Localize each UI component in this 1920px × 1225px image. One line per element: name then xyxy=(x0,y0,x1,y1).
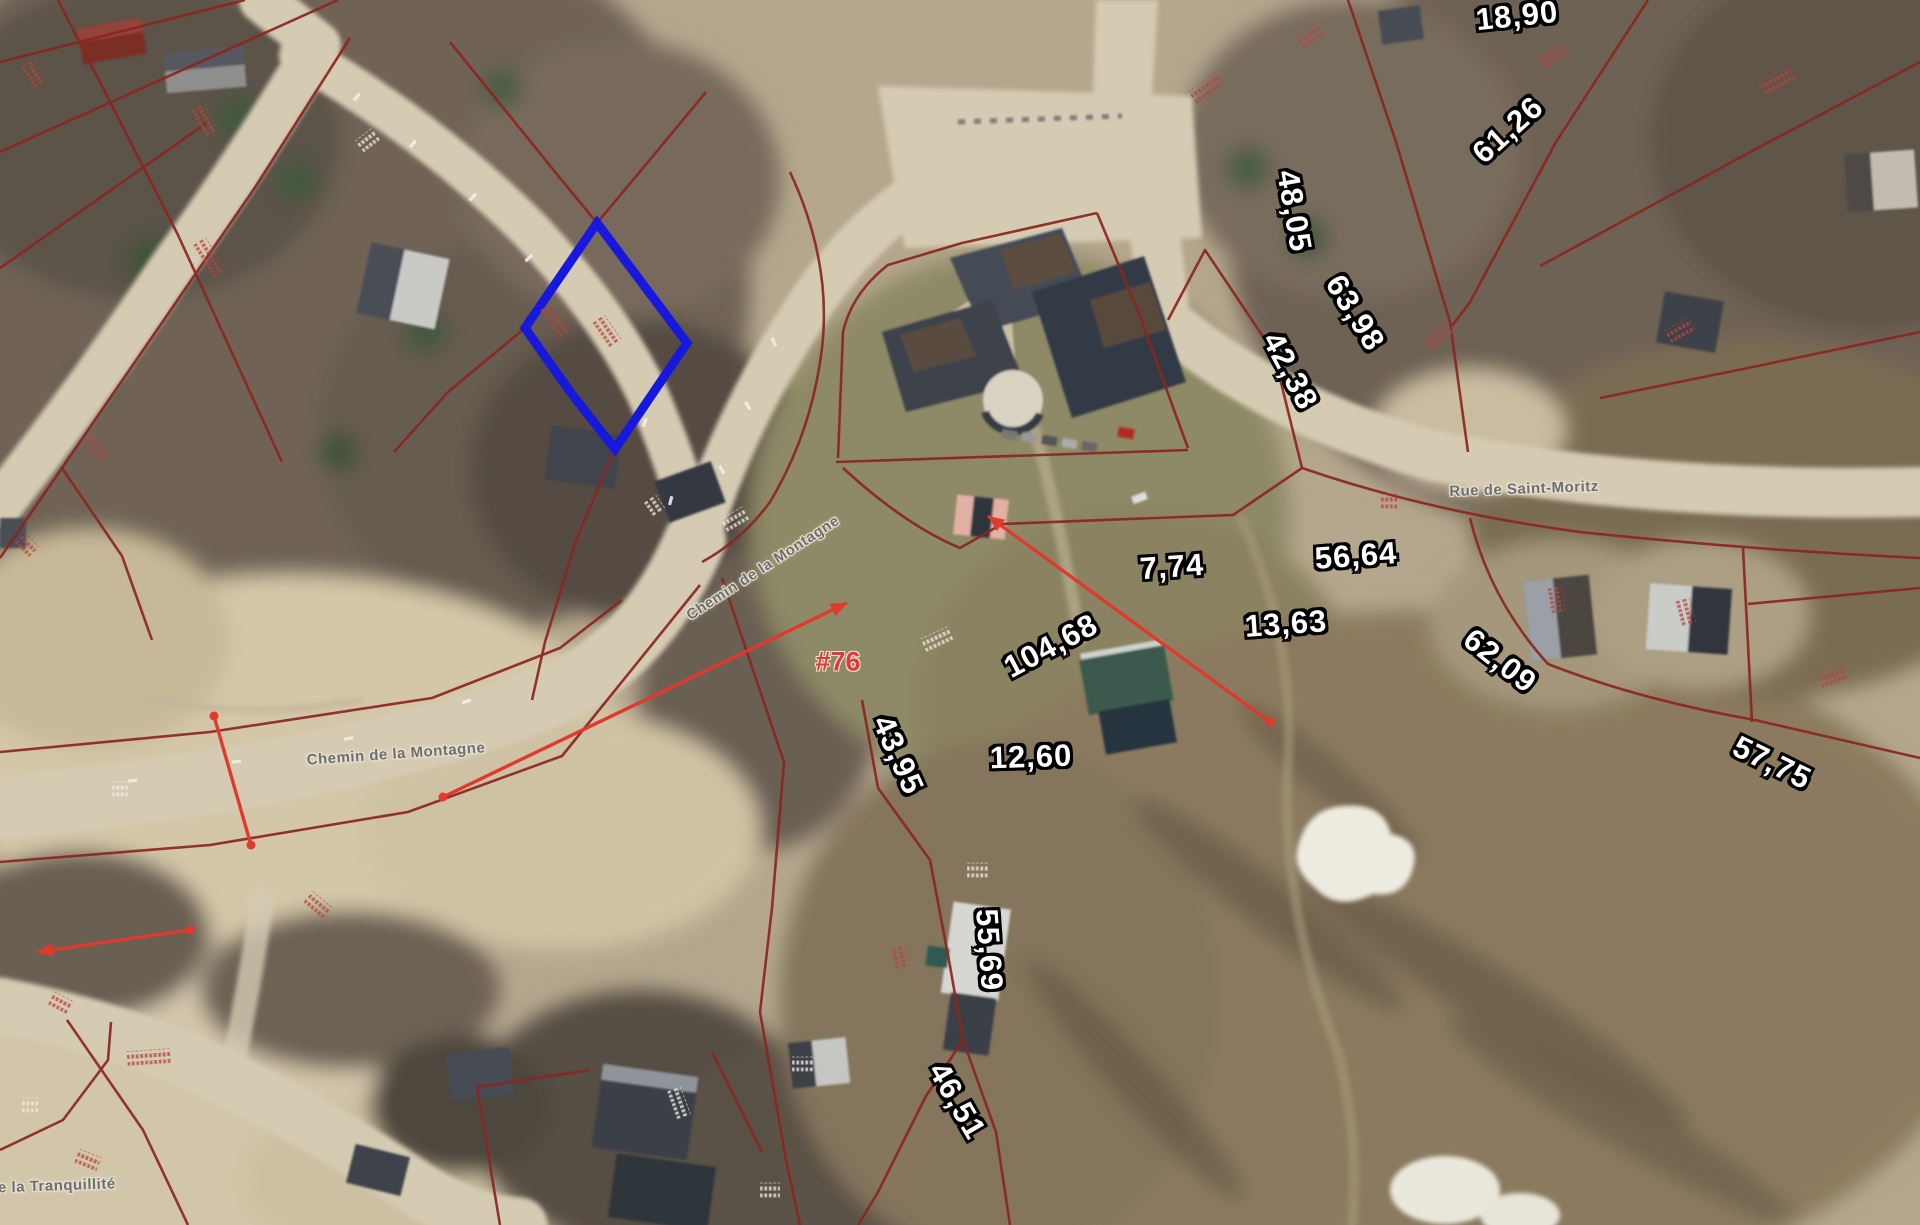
building xyxy=(446,1047,515,1101)
building xyxy=(163,47,246,94)
map-canvas xyxy=(0,0,1920,1225)
aerial-cadastral-map[interactable]: 18,9061,2648,0563,9842,3856,647,7413,631… xyxy=(0,0,1920,1225)
building xyxy=(545,425,622,488)
building xyxy=(0,518,26,548)
building xyxy=(1378,5,1424,45)
building xyxy=(788,1037,850,1089)
building xyxy=(592,1064,699,1161)
building xyxy=(1646,583,1732,655)
building xyxy=(1844,150,1918,213)
building xyxy=(1656,291,1724,353)
building xyxy=(953,494,1009,539)
